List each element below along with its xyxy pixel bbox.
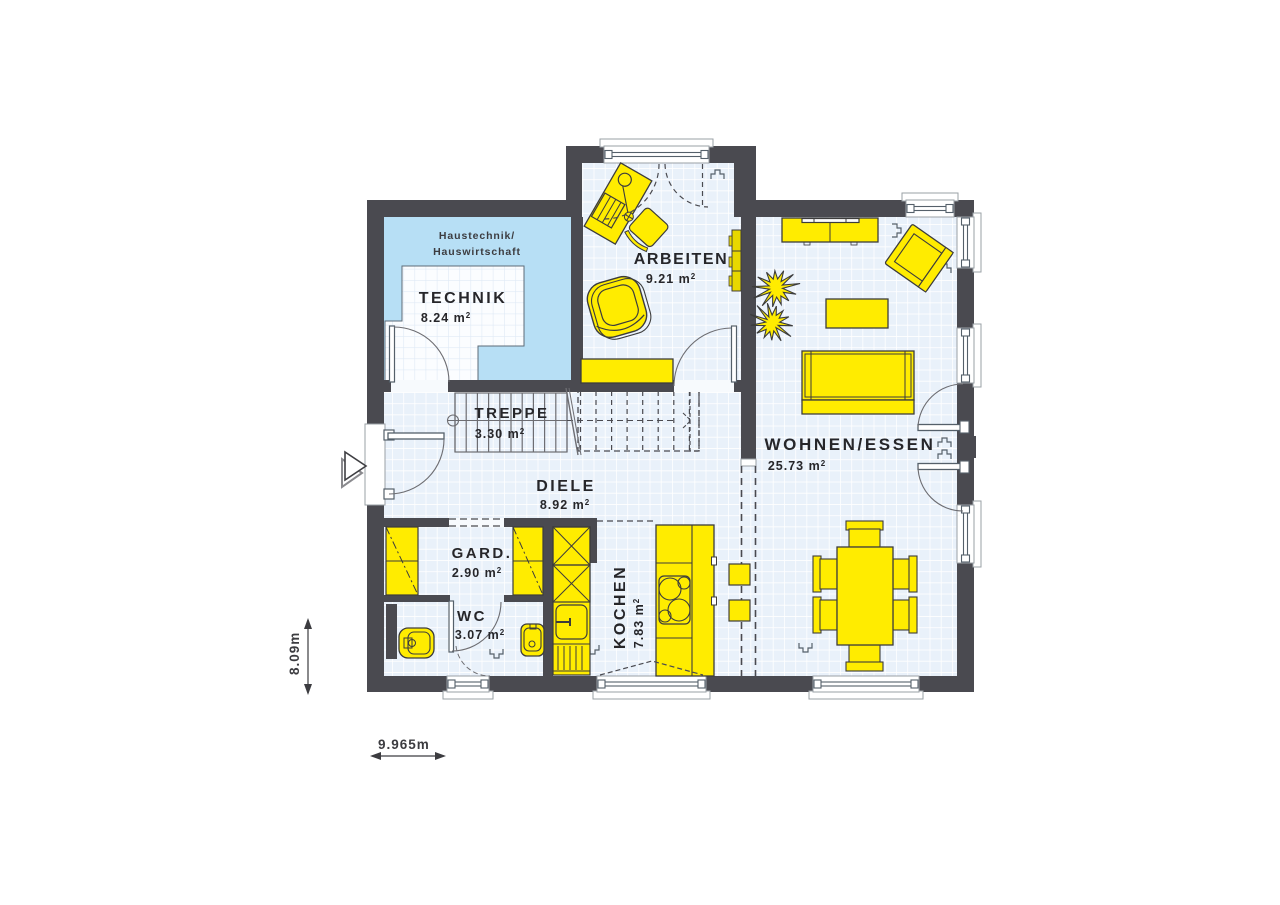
svg-text:WC: WC [457,608,487,625]
svg-text:8.24 m2: 8.24 m2 [421,311,471,325]
svg-text:25.73 m2: 25.73 m2 [768,459,826,473]
svg-text:3.07 m2: 3.07 m2 [455,628,505,642]
svg-text:TREPPE: TREPPE [474,405,549,422]
svg-text:8.92 m2: 8.92 m2 [540,498,590,512]
svg-text:2.90 m2: 2.90 m2 [452,566,502,580]
svg-text:GARD.: GARD. [452,545,513,562]
svg-text:KOCHEN: KOCHEN [612,565,629,649]
svg-text:TECHNIK: TECHNIK [419,290,508,307]
svg-text:9.21 m2: 9.21 m2 [646,272,696,286]
svg-text:DIELE: DIELE [536,478,596,495]
svg-text:7.83 m2: 7.83 m2 [632,598,646,648]
svg-text:Hauswirtschaft: Hauswirtschaft [433,246,521,258]
svg-text:Haustechnik/: Haustechnik/ [439,230,515,242]
svg-text:8.09m: 8.09m [287,632,302,675]
svg-text:ARBEITEN: ARBEITEN [634,251,729,268]
svg-text:3.30 m2: 3.30 m2 [475,427,525,441]
svg-text:9.965m: 9.965m [378,737,430,752]
svg-text:WOHNEN/ESSEN: WOHNEN/ESSEN [765,435,936,454]
